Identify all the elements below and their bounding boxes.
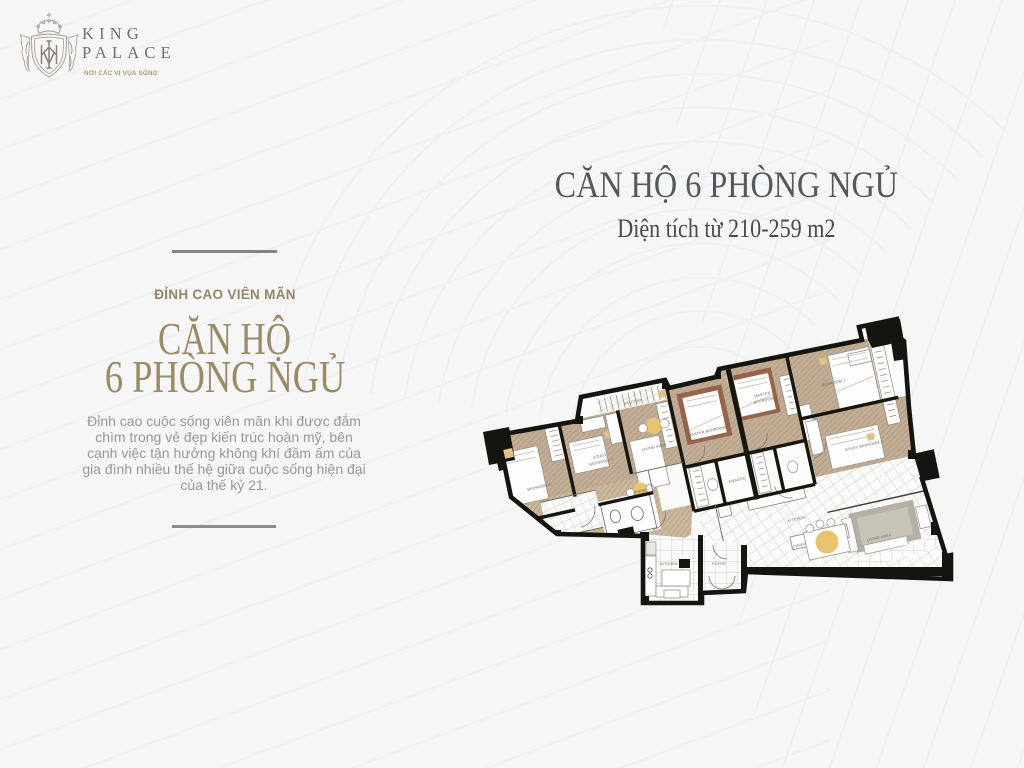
- svg-text:FOYER: FOYER: [712, 562, 726, 566]
- svg-text:KITCHEN: KITCHEN: [660, 562, 678, 566]
